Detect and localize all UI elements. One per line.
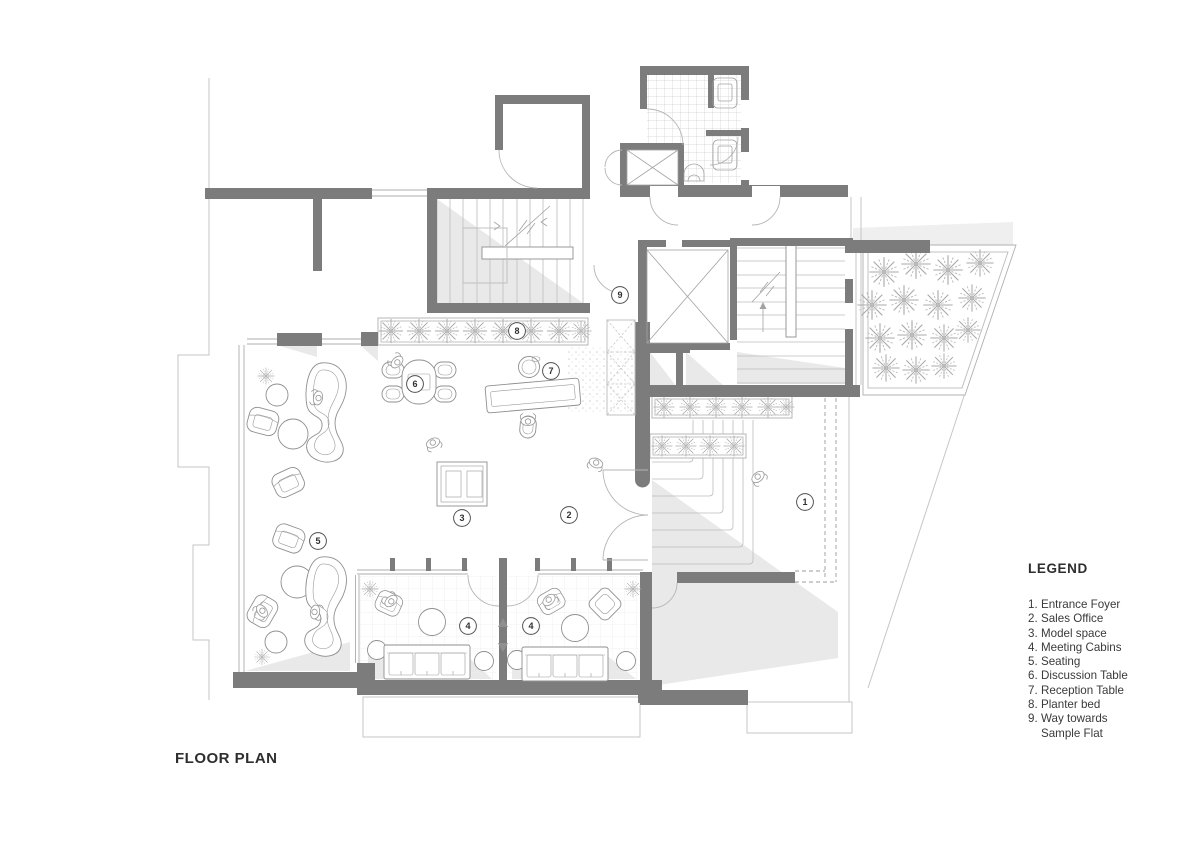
floor-plan-drawing: 1234456789 <box>0 0 1200 848</box>
legend-item: 4.Meeting Cabins <box>1028 641 1178 655</box>
planter-bed-top <box>378 318 592 345</box>
plan-marker-2: 2 <box>561 507 578 524</box>
side-table <box>265 631 287 653</box>
legend-item: 3.Model space <box>1028 627 1178 641</box>
plan-marker-4: 4 <box>523 618 540 635</box>
corner-plant <box>362 581 379 598</box>
legend-item: 7.Reception Table <box>1028 684 1178 698</box>
round-table <box>419 609 446 636</box>
plan-marker-8: 8 <box>509 323 526 340</box>
corner-plant <box>254 649 270 665</box>
kidney-sofa <box>303 556 347 657</box>
plan-marker-7: 7 <box>543 363 560 380</box>
svg-text:3: 3 <box>459 513 464 523</box>
svg-text:1: 1 <box>802 497 807 507</box>
round-table <box>278 419 308 449</box>
cabin-sofa <box>384 645 470 679</box>
cabin-sofa <box>522 647 608 681</box>
svg-text:4: 4 <box>528 621 533 631</box>
plan-marker-4: 4 <box>460 618 477 635</box>
kidney-sofa <box>306 363 346 462</box>
legend-item: 2.Sales Office <box>1028 612 1178 626</box>
model-space-table <box>437 462 487 506</box>
corner-plant <box>258 368 275 385</box>
plan-marker-5: 5 <box>310 533 327 550</box>
corner-plant <box>625 581 642 598</box>
svg-text:8: 8 <box>514 326 519 336</box>
legend-panel: LEGEND 1.Entrance Foyer2.Sales Office3.M… <box>1028 561 1178 741</box>
svg-text:2: 2 <box>566 510 571 520</box>
plan-marker-9: 9 <box>612 287 629 304</box>
legend-items: 1.Entrance Foyer2.Sales Office3.Model sp… <box>1028 598 1178 741</box>
side-table <box>266 384 288 406</box>
legend-heading: LEGEND <box>1028 561 1178 576</box>
legend-item: 1.Entrance Foyer <box>1028 598 1178 612</box>
plan-marker-1: 1 <box>797 494 814 511</box>
legend-item: 9.Way towards Sample Flat <box>1028 712 1178 741</box>
svg-text:9: 9 <box>617 290 622 300</box>
planter-trapezoid-topright <box>857 245 1016 395</box>
planter-rows-foyer <box>650 396 794 458</box>
legend-item: 6.Discussion Table <box>1028 669 1178 683</box>
round-table <box>562 615 589 642</box>
stool <box>519 357 540 378</box>
foyer-figures <box>749 469 769 488</box>
legend-item: 8.Planter bed <box>1028 698 1178 712</box>
legend-item: 5.Seating <box>1028 655 1178 669</box>
svg-text:4: 4 <box>465 621 470 631</box>
svg-text:5: 5 <box>315 536 320 546</box>
plan-marker-3: 3 <box>454 510 471 527</box>
floor-plan-page: 1234456789 LEGEND 1.Entrance Foyer2.Sale… <box>0 0 1200 848</box>
svg-text:7: 7 <box>548 366 553 376</box>
svg-text:6: 6 <box>412 379 417 389</box>
plan-marker-6: 6 <box>407 376 424 393</box>
plan-title: FLOOR PLAN <box>175 750 278 767</box>
